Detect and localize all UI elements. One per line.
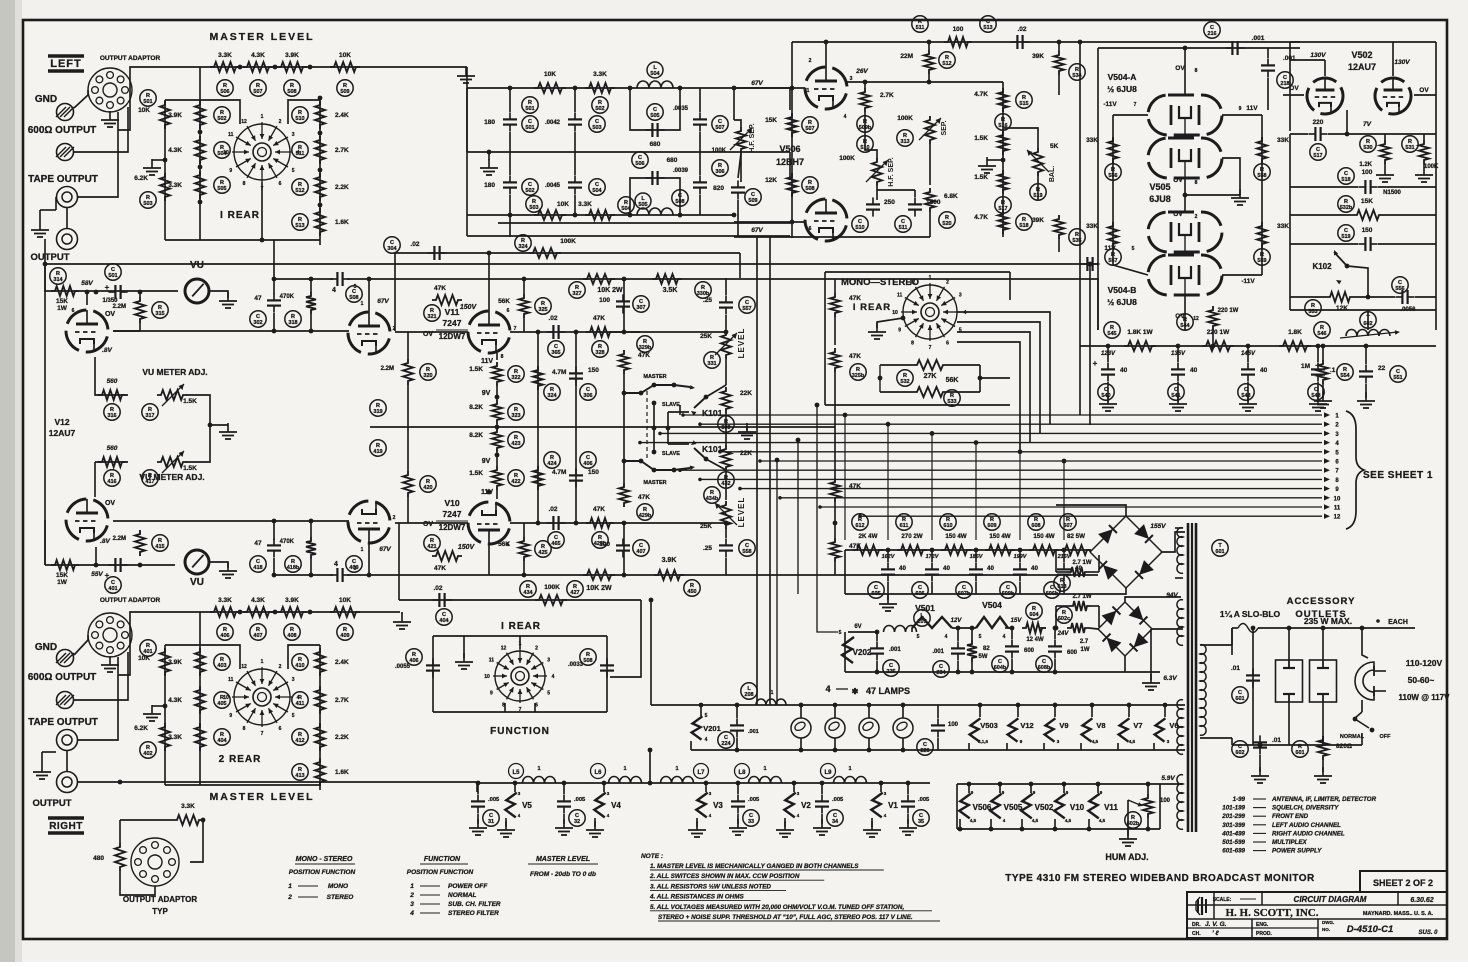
svg-text:5: 5 [547,691,550,697]
svg-text:532: 532 [900,379,909,385]
svg-text:8: 8 [1195,68,1198,74]
svg-text:V10: V10 [1070,803,1085,812]
svg-text:MULTIPLEX: MULTIPLEX [1272,839,1307,846]
svg-text:R: R [1034,517,1038,523]
svg-text:612: 612 [855,523,864,529]
svg-text:11V: 11V [481,358,493,365]
svg-text:.02: .02 [410,241,419,248]
svg-text:511: 511 [916,25,925,31]
svg-text:4.7M: 4.7M [552,369,566,376]
svg-text:100: 100 [599,541,610,548]
svg-text:C: C [638,155,642,161]
svg-text:47K: 47K [849,353,861,360]
svg-text:47K: 47K [434,285,446,292]
svg-text:R: R [220,180,224,186]
svg-text:GND: GND [35,642,57,653]
svg-text:67V: 67V [751,227,763,234]
svg-text:501-599: 501-599 [1222,839,1245,846]
svg-text:.02: .02 [433,585,442,592]
svg-text:R: R [426,479,430,485]
svg-text:235 W MAX.: 235 W MAX. [1304,616,1352,626]
svg-text:2.7: 2.7 [1080,639,1089,645]
svg-text:R: R [521,238,525,244]
svg-text:V505: V505 [1149,182,1170,192]
svg-text:10K: 10K [557,201,569,208]
svg-text:SLAVE: SLAVE [662,451,680,457]
svg-text:15V: 15V [1011,618,1023,624]
svg-text:12: 12 [501,645,507,651]
svg-text:R: R [1320,325,1324,331]
svg-text:8: 8 [1195,180,1198,186]
svg-text:508: 508 [287,89,296,95]
svg-text:12BH7: 12BH7 [776,157,804,167]
svg-text:33K: 33K [1086,223,1098,230]
svg-text:R: R [146,745,150,751]
svg-text:MASTER LEVEL: MASTER LEVEL [209,791,314,803]
svg-text:R: R [946,517,950,523]
svg-text:C: C [962,585,966,591]
svg-text:680: 680 [650,141,661,148]
svg-text:11: 11 [489,658,495,664]
svg-text:331: 331 [707,361,716,367]
svg-text:.25: .25 [703,545,712,552]
svg-text:R: R [856,367,860,373]
svg-text:V503: V503 [980,721,998,730]
svg-text:V10: V10 [444,498,459,508]
svg-text:V12: V12 [54,417,69,427]
svg-text:12: 12 [1193,316,1199,322]
svg-text:26V: 26V [855,68,868,75]
svg-text:3.9K: 3.9K [168,112,182,119]
svg-text:47K: 47K [593,506,605,513]
svg-text:507: 507 [253,89,262,95]
svg-text:1: 1 [261,659,264,665]
svg-text:503: 503 [592,125,601,131]
svg-text:434: 434 [523,590,533,596]
svg-text:313: 313 [900,139,909,145]
svg-text:510: 510 [295,116,304,122]
svg-text:4.7M: 4.7M [552,469,566,476]
svg-text:32: 32 [574,819,580,825]
svg-text:509: 509 [748,198,757,204]
svg-text:470K: 470K [280,294,295,300]
svg-text:600Ω OUTPUT: 600Ω OUTPUT [28,672,97,683]
svg-text:.8V: .8V [102,347,112,354]
svg-text:R: R [808,180,812,186]
svg-text:SEP.: SEP. [941,120,948,135]
svg-text:V504: V504 [982,600,1002,610]
svg-text:820Ω: 820Ω [1336,743,1352,750]
svg-text:250: 250 [884,199,895,206]
svg-text:3: 3 [850,76,853,82]
svg-text:3.3K: 3.3K [578,201,592,208]
svg-text:R: R [1260,252,1264,258]
svg-text:C: C [874,585,878,591]
svg-text:.005: .005 [832,797,844,803]
svg-text:C: C [256,559,260,565]
svg-text:1.5K: 1.5K [469,366,483,373]
svg-text:58V: 58V [81,280,93,287]
svg-text:.005: .005 [488,797,500,803]
svg-text:C: C [111,267,115,273]
svg-text:STEREO: STEREO [327,894,354,901]
svg-text:2: 2 [393,326,396,332]
svg-text:11: 11 [228,132,234,138]
svg-text:R: R [541,301,545,307]
svg-text:505: 505 [217,186,226,192]
svg-text:NORMAL: NORMAL [1340,734,1365,740]
svg-text:509: 509 [340,89,349,95]
svg-text:607: 607 [1063,523,1072,529]
svg-text:R: R [426,367,430,373]
svg-text:R: R [298,657,302,663]
svg-text:608: 608 [1031,523,1040,529]
svg-text:R: R [1001,117,1005,123]
svg-text:3: 3 [410,901,414,908]
svg-text:5: 5 [979,634,982,640]
svg-text:C: C [1050,585,1054,591]
svg-text:518: 518 [1019,223,1028,229]
svg-text:R: R [430,538,434,544]
svg-text:C: C [939,664,943,670]
svg-text:419: 419 [373,449,382,455]
svg-text:R: R [1183,317,1187,323]
svg-text:150V: 150V [458,544,476,551]
svg-text:480: 480 [93,855,104,862]
svg-text:C: C [1316,147,1320,153]
svg-text:V202: V202 [853,648,872,657]
svg-text:329b: 329b [639,345,652,351]
svg-text:.0033: .0033 [568,662,584,668]
svg-text:2: 2 [946,280,949,286]
svg-text:560: 560 [107,378,118,385]
svg-text:.001: .001 [932,649,944,655]
svg-text:602: 602 [1235,750,1244,756]
svg-text:C: C [901,219,905,225]
svg-text:317: 317 [145,413,154,419]
svg-text:508: 508 [583,658,592,664]
svg-text:OUTPUT ADAPTOR: OUTPUT ADAPTOR [100,55,161,62]
svg-text:520: 520 [942,221,951,227]
svg-text:DR.: DR. [1192,922,1201,928]
svg-text:513: 513 [295,223,304,229]
svg-text:100: 100 [1160,798,1171,804]
svg-text:NORMAL: NORMAL [448,892,477,899]
svg-text:511: 511 [899,225,908,231]
svg-text:R: R [376,443,380,449]
svg-text:R: R [298,182,302,188]
svg-text:324: 324 [518,244,528,250]
svg-text:544: 544 [1180,323,1190,329]
svg-text:L8: L8 [738,770,746,776]
svg-text:226: 226 [920,748,929,754]
svg-text:V502: V502 [1035,803,1054,812]
svg-text:531: 531 [1405,145,1414,151]
svg-text:150: 150 [588,469,599,476]
svg-text:-11V: -11V [1103,101,1117,108]
svg-text:50-60~: 50-60~ [1408,675,1435,685]
svg-text:100K: 100K [897,115,913,122]
svg-text:2: 2 [409,892,414,899]
svg-text:47K: 47K [434,565,446,572]
svg-text:323: 323 [511,413,520,419]
svg-text:505: 505 [650,113,659,119]
svg-text:2: 2 [393,515,396,521]
svg-text:10K 2W: 10K 2W [586,585,612,592]
svg-text:1.8K 1W: 1.8K 1W [1127,329,1153,336]
svg-text:2 REAR: 2 REAR [219,754,262,765]
svg-text:10K: 10K [339,52,351,59]
svg-text:.02: .02 [1017,26,1026,33]
svg-text:R: R [430,308,434,314]
svg-text:5: 5 [917,634,920,640]
svg-text:56K: 56K [498,541,510,548]
svg-text:543: 543 [1241,393,1250,399]
svg-text:.0042: .0042 [545,120,561,126]
svg-text:2.2M: 2.2M [381,366,394,372]
svg-text:6: 6 [279,181,282,187]
svg-text:R: R [528,100,532,106]
svg-text:4: 4 [964,310,967,316]
svg-text:39K: 39K [1032,217,1044,224]
svg-text:6.30.62: 6.30.62 [1410,897,1433,904]
svg-text:545: 545 [1107,331,1116,337]
svg-text:R: R [110,407,114,413]
svg-text:559: 559 [1257,258,1266,264]
svg-text:POWER SUPPLY: POWER SUPPLY [1272,848,1322,855]
svg-text:R: R [624,200,628,206]
svg-text:150 4W: 150 4W [945,533,966,540]
svg-text:5,1,6: 5,1,6 [978,739,989,744]
svg-text:10: 10 [484,674,490,680]
svg-text:½ 6JU8: ½ 6JU8 [1107,297,1137,307]
svg-text:4. ALL RESISTANCES IN OHMS: 4. ALL RESISTANCES IN OHMS [649,894,744,901]
svg-text:100: 100 [599,297,610,304]
svg-text:5: 5 [1132,246,1135,252]
svg-text:224: 224 [721,741,731,747]
svg-text:318: 318 [288,320,297,326]
svg-text:N1500: N1500 [1383,190,1401,196]
svg-text:67V: 67V [377,298,389,305]
svg-text:R: R [1131,815,1135,821]
svg-text:H.F. SEP.: H.F. SEP. [749,123,756,152]
svg-text:220 1W: 220 1W [1218,308,1239,314]
svg-text:10K: 10K [544,71,556,78]
svg-text:321: 321 [427,314,436,320]
svg-text:C: C [390,240,394,246]
svg-text:5K: 5K [1050,143,1059,150]
svg-text:3.3K: 3.3K [218,52,232,59]
svg-text:1: 1 [675,766,678,772]
svg-text:12: 12 [241,664,247,670]
svg-text:407: 407 [253,633,262,639]
svg-text:55V: 55V [91,571,103,578]
svg-text:3.3K: 3.3K [181,803,195,810]
svg-text:C: C [352,559,356,565]
svg-text:2: 2 [809,58,812,64]
svg-text:3: 3 [959,293,962,299]
svg-text:47K: 47K [638,352,650,359]
svg-text:R: R [291,314,295,320]
svg-text:100K: 100K [1424,164,1439,170]
svg-text:C: C [858,219,862,225]
svg-text:8: 8 [911,340,914,346]
svg-text:2.7K: 2.7K [335,147,349,154]
svg-text:R: R [1343,367,1347,373]
svg-text:22K: 22K [740,390,752,397]
svg-text:K102: K102 [1312,262,1332,271]
svg-text:OV: OV [105,500,115,507]
svg-text:130V: 130V [1310,52,1326,59]
svg-text:R: R [412,652,416,658]
svg-text:C: C [111,580,115,586]
svg-text:12DW7: 12DW7 [439,523,466,532]
svg-text:100K: 100K [560,238,576,245]
svg-text:.0045: .0045 [545,183,561,189]
svg-text:R: R [808,120,812,126]
svg-text:551: 551 [1393,375,1402,381]
svg-text:L5: L5 [512,770,520,776]
svg-text:319: 319 [373,409,382,415]
svg-text:4: 4 [705,737,708,743]
svg-text:R: R [220,732,224,738]
svg-text:11: 11 [897,293,903,299]
svg-text:R: R [146,195,150,201]
svg-text:401: 401 [143,649,152,655]
svg-text:8: 8 [243,181,246,187]
svg-text:R: R [298,217,302,223]
svg-text:8: 8 [501,354,504,360]
svg-text:C: C [919,813,923,819]
svg-text:C: C [1042,659,1046,665]
svg-text:C: C [998,659,1002,665]
svg-text:600: 600 [1067,650,1078,656]
svg-text:R: R [1022,95,1026,101]
svg-text:601: 601 [1295,750,1304,756]
svg-text:604b: 604b [994,665,1007,671]
svg-text:LEVEL: LEVEL [737,328,746,359]
svg-text:503: 503 [529,205,538,211]
svg-text:NO.: NO. [1322,927,1330,932]
svg-text:C: C [256,314,260,320]
svg-text:C: C [745,543,749,549]
svg-text:560: 560 [107,445,118,452]
svg-text:503: 503 [143,201,152,207]
svg-text:R: R [1344,199,1348,205]
svg-text:180: 180 [484,182,495,189]
svg-text:C: C [1006,585,1010,591]
svg-text:DWG.: DWG. [1322,920,1334,925]
svg-text:R: R [514,473,518,479]
svg-text:V2: V2 [801,801,811,810]
svg-text:3: 3 [292,132,295,138]
svg-text:R: R [990,517,994,523]
svg-text:R: R [376,403,380,409]
svg-text:1: 1 [261,114,264,120]
svg-text:R: R [1062,610,1066,616]
svg-text:519: 519 [1341,234,1350,240]
svg-text:OV: OV [1289,85,1299,92]
svg-text:R: R [1366,139,1370,145]
svg-text:CIRCUIT DIAGRAM: CIRCUIT DIAGRAM [1294,895,1367,904]
svg-text:.0055: .0055 [395,664,411,670]
svg-text:304: 304 [387,246,397,252]
svg-text:R: R [643,339,647,345]
svg-text:601: 601 [1235,696,1244,702]
svg-text:6: 6 [72,308,75,314]
svg-text:R: R [148,407,152,413]
svg-text:OV: OV [1173,211,1183,218]
svg-text:12AU7: 12AU7 [49,428,76,438]
svg-text:R: R [1032,606,1036,612]
svg-text:12K: 12K [1336,305,1348,312]
svg-text:506: 506 [220,89,229,95]
svg-text:R: R [146,643,150,649]
svg-text:V11: V11 [1104,803,1118,812]
svg-text:6: 6 [507,308,510,314]
svg-text:MASTER: MASTER [643,374,666,380]
svg-text:1.5K: 1.5K [974,135,988,142]
svg-text:POWER OFF: POWER OFF [448,883,488,890]
svg-text:R: R [514,407,518,413]
svg-text:SCALE:: SCALE: [1213,897,1232,903]
svg-text:150 4W: 150 4W [1033,533,1054,540]
svg-text:434b: 434b [706,496,719,502]
svg-text:D-4510-C1: D-4510-C1 [1347,924,1393,935]
svg-text:VU: VU [190,577,204,588]
svg-text:501: 501 [108,273,117,279]
svg-text:C: C [554,344,558,350]
svg-text:R: R [158,538,162,544]
svg-text:-11V: -11V [1241,278,1255,285]
svg-text:SUB. CH. FILTER: SUB. CH. FILTER [448,901,501,908]
svg-text:OV: OV [1173,177,1183,184]
svg-text:R: R [1311,303,1315,309]
svg-text:9: 9 [490,691,493,697]
svg-text:OV: OV [423,521,433,528]
svg-text:OUTPUT ADAPTOR: OUTPUT ADAPTOR [100,597,161,604]
svg-text:508: 508 [805,186,814,192]
svg-text:601: 601 [1215,549,1224,555]
svg-text:508: 508 [349,295,358,301]
svg-text:C: C [653,107,657,113]
svg-text:PROD.: PROD. [1256,931,1272,937]
svg-text:3: 3 [292,677,295,683]
svg-text:V504-B: V504-B [1108,285,1137,295]
svg-text:L7: L7 [697,770,705,776]
svg-text:540: 540 [1101,393,1110,399]
svg-text:502: 502 [217,116,226,122]
svg-text:2.7K: 2.7K [880,92,894,99]
svg-text:3.3K: 3.3K [218,597,232,604]
svg-text:512: 512 [295,188,304,194]
svg-text:H. H. SCOTT, INC.: H. H. SCOTT, INC. [1225,907,1318,919]
svg-text:220: 220 [1313,119,1324,126]
svg-text:415: 415 [155,544,164,550]
svg-text:C: C [889,663,893,669]
svg-text:C: C [554,535,558,541]
svg-text:100: 100 [948,722,959,728]
svg-text:429b: 429b [639,513,652,519]
svg-text:4: 4 [297,695,300,701]
svg-text:418b: 418b [287,565,300,571]
svg-text:1: 1 [361,547,364,553]
svg-text:517: 517 [1313,153,1322,159]
svg-text:31: 31 [488,819,494,825]
svg-text:C: C [918,585,922,591]
svg-text:SHEET 2 OF 2: SHEET 2 OF 2 [1373,878,1433,888]
svg-text:R: R [575,285,579,291]
